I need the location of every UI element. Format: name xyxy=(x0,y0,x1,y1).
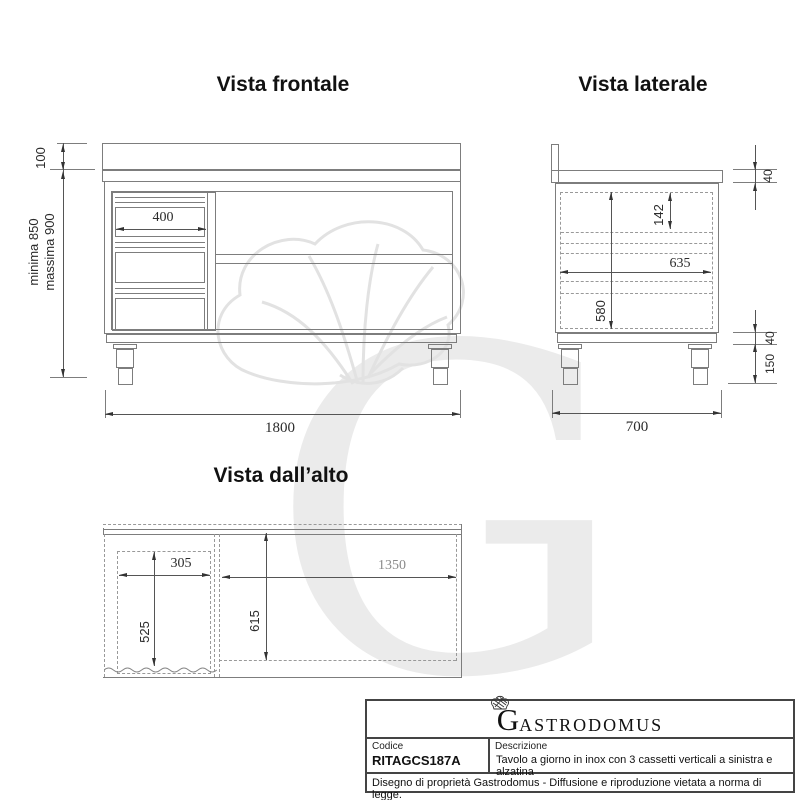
logo-text: ASTRODOMUS xyxy=(519,716,663,735)
top-left-edge xyxy=(104,534,105,677)
gastrodomus-logo: G ASTRODOMUS xyxy=(367,701,793,738)
code-label: Codice xyxy=(372,741,403,752)
dim-top-height-label: 100 xyxy=(27,143,53,173)
dim-max-height-label: massima 900 xyxy=(42,202,56,302)
side-worktop xyxy=(551,170,723,183)
title-block: G ASTRODOMUS Codice RITAGCS187A Descrizi… xyxy=(365,699,795,793)
top-view-title: Vista dall’alto xyxy=(201,464,361,488)
break-wavy-line xyxy=(104,666,217,674)
drawer-front-3 xyxy=(115,298,205,330)
front-base-strip xyxy=(106,334,457,343)
top-upstand-line xyxy=(103,534,462,535)
top-outline-dashed-edge xyxy=(103,524,462,525)
technical-drawing-sheet: G Vista frontale xyxy=(0,0,800,800)
drawer-front-2 xyxy=(115,252,205,283)
description-value: Tavolo a giorno in inox con 3 cassetti v… xyxy=(496,754,793,778)
front-upstand xyxy=(102,143,461,170)
code-value: RITAGCS187A xyxy=(372,753,461,768)
side-base-strip xyxy=(557,333,717,343)
description-label: Descrizione xyxy=(495,741,547,752)
side-view-title: Vista laterale xyxy=(563,73,723,97)
legal-notice: Disegno di proprietà Gastrodomus - Diffu… xyxy=(372,777,793,800)
front-view-title: Vista frontale xyxy=(203,73,363,97)
logo-chef-hat-icon xyxy=(490,695,510,711)
top-right-edge xyxy=(461,524,462,678)
front-shelf-line xyxy=(216,254,453,255)
top-bottom-edge xyxy=(103,677,462,678)
dim-min-height-label: minima 850 xyxy=(26,202,40,302)
